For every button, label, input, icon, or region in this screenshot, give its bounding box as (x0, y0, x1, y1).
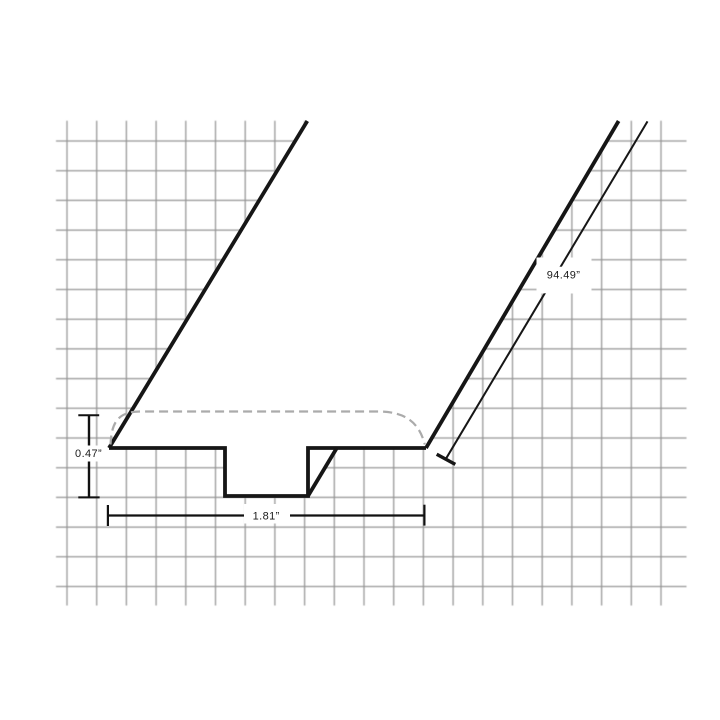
svg-text:0.47”: 0.47” (75, 448, 102, 460)
svg-text:94.49”: 94.49” (547, 270, 581, 282)
svg-text:1.81”: 1.81” (253, 510, 280, 522)
